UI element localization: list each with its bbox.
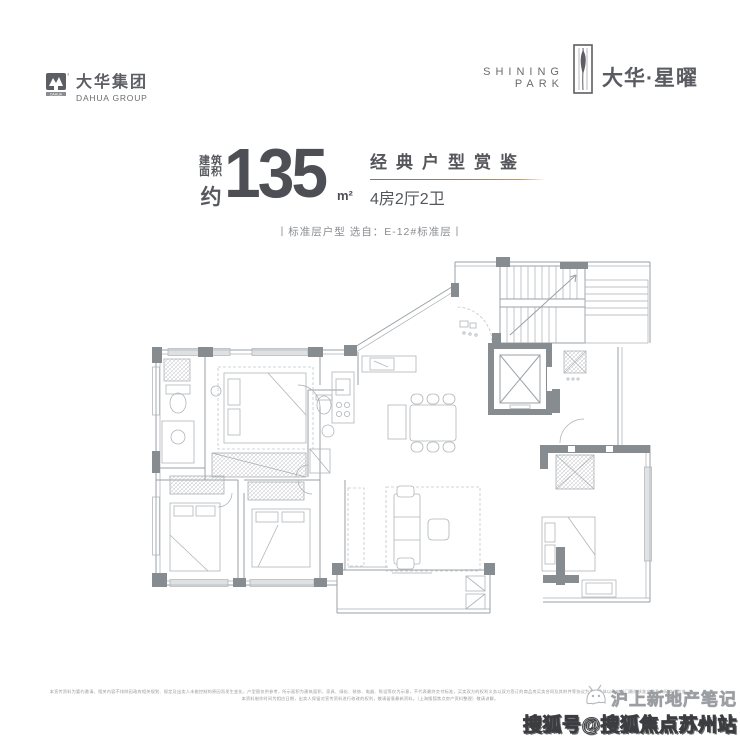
svg-text:DAHUA: DAHUA [50,93,63,97]
stairwell [500,262,648,343]
area-prefix-line2: 面积 [198,167,224,178]
svg-text:®: ® [67,72,69,77]
bedroom-b [170,476,224,571]
bedroom-c [248,482,310,567]
vestibule [451,283,501,345]
tagline: 经典户型赏鉴 [370,148,546,173]
balcony-right [543,575,650,602]
layout-spec: 4房2厅2卫 [370,185,546,209]
project-logo-cn: 大华·星曜 [602,62,698,92]
title-divider [370,179,546,180]
dahua-logo-icon: DAHUA ® [45,72,69,99]
floor-plan [148,255,658,630]
bathroom-1 [162,359,194,463]
area-unit: m² [337,188,353,203]
project-logo-en-bottom: PARK [515,78,564,90]
dahua-logo-cn: 大华集团 [76,68,148,92]
elevator [491,346,553,412]
watermark: 沪上新地产笔记 搜狐号@搜狐焦点苏州站 [523,683,737,737]
entry-corridor [552,347,622,445]
dahua-logo-en: DAHUA GROUP [76,93,148,103]
area-value: 135 [224,138,325,207]
watermark-badge: 搜狐号@搜狐焦点苏州站 [523,710,737,737]
subtitle: 丨标准层户型 选自：E-12#标准层丨 [0,224,740,239]
living-room [348,486,480,571]
poster-canvas: DAHUA ® 大华集团 DAHUA GROUP SHINING PARK 大华… [0,0,740,740]
bedroom-right [540,445,650,585]
title-block: 建筑 面积 约 135 m² 经典户型赏鉴 4房2厅2卫 [198,146,546,216]
dining-area [388,394,456,452]
project-logo: SHINING PARK 大华·星曜 [483,44,698,94]
project-logo-en-top: SHINING [483,66,564,78]
watermark-title: 沪上新地产笔记 [611,685,737,710]
bedroom-a [211,367,313,477]
bathroom-2 [310,395,334,473]
dahua-group-logo: DAHUA ® 大华集团 DAHUA GROUP [45,68,148,103]
balcony-center [332,563,495,613]
project-logo-icon [573,44,593,94]
ghost-icon [583,683,609,712]
area-prefix-line3: 约 [198,181,224,211]
